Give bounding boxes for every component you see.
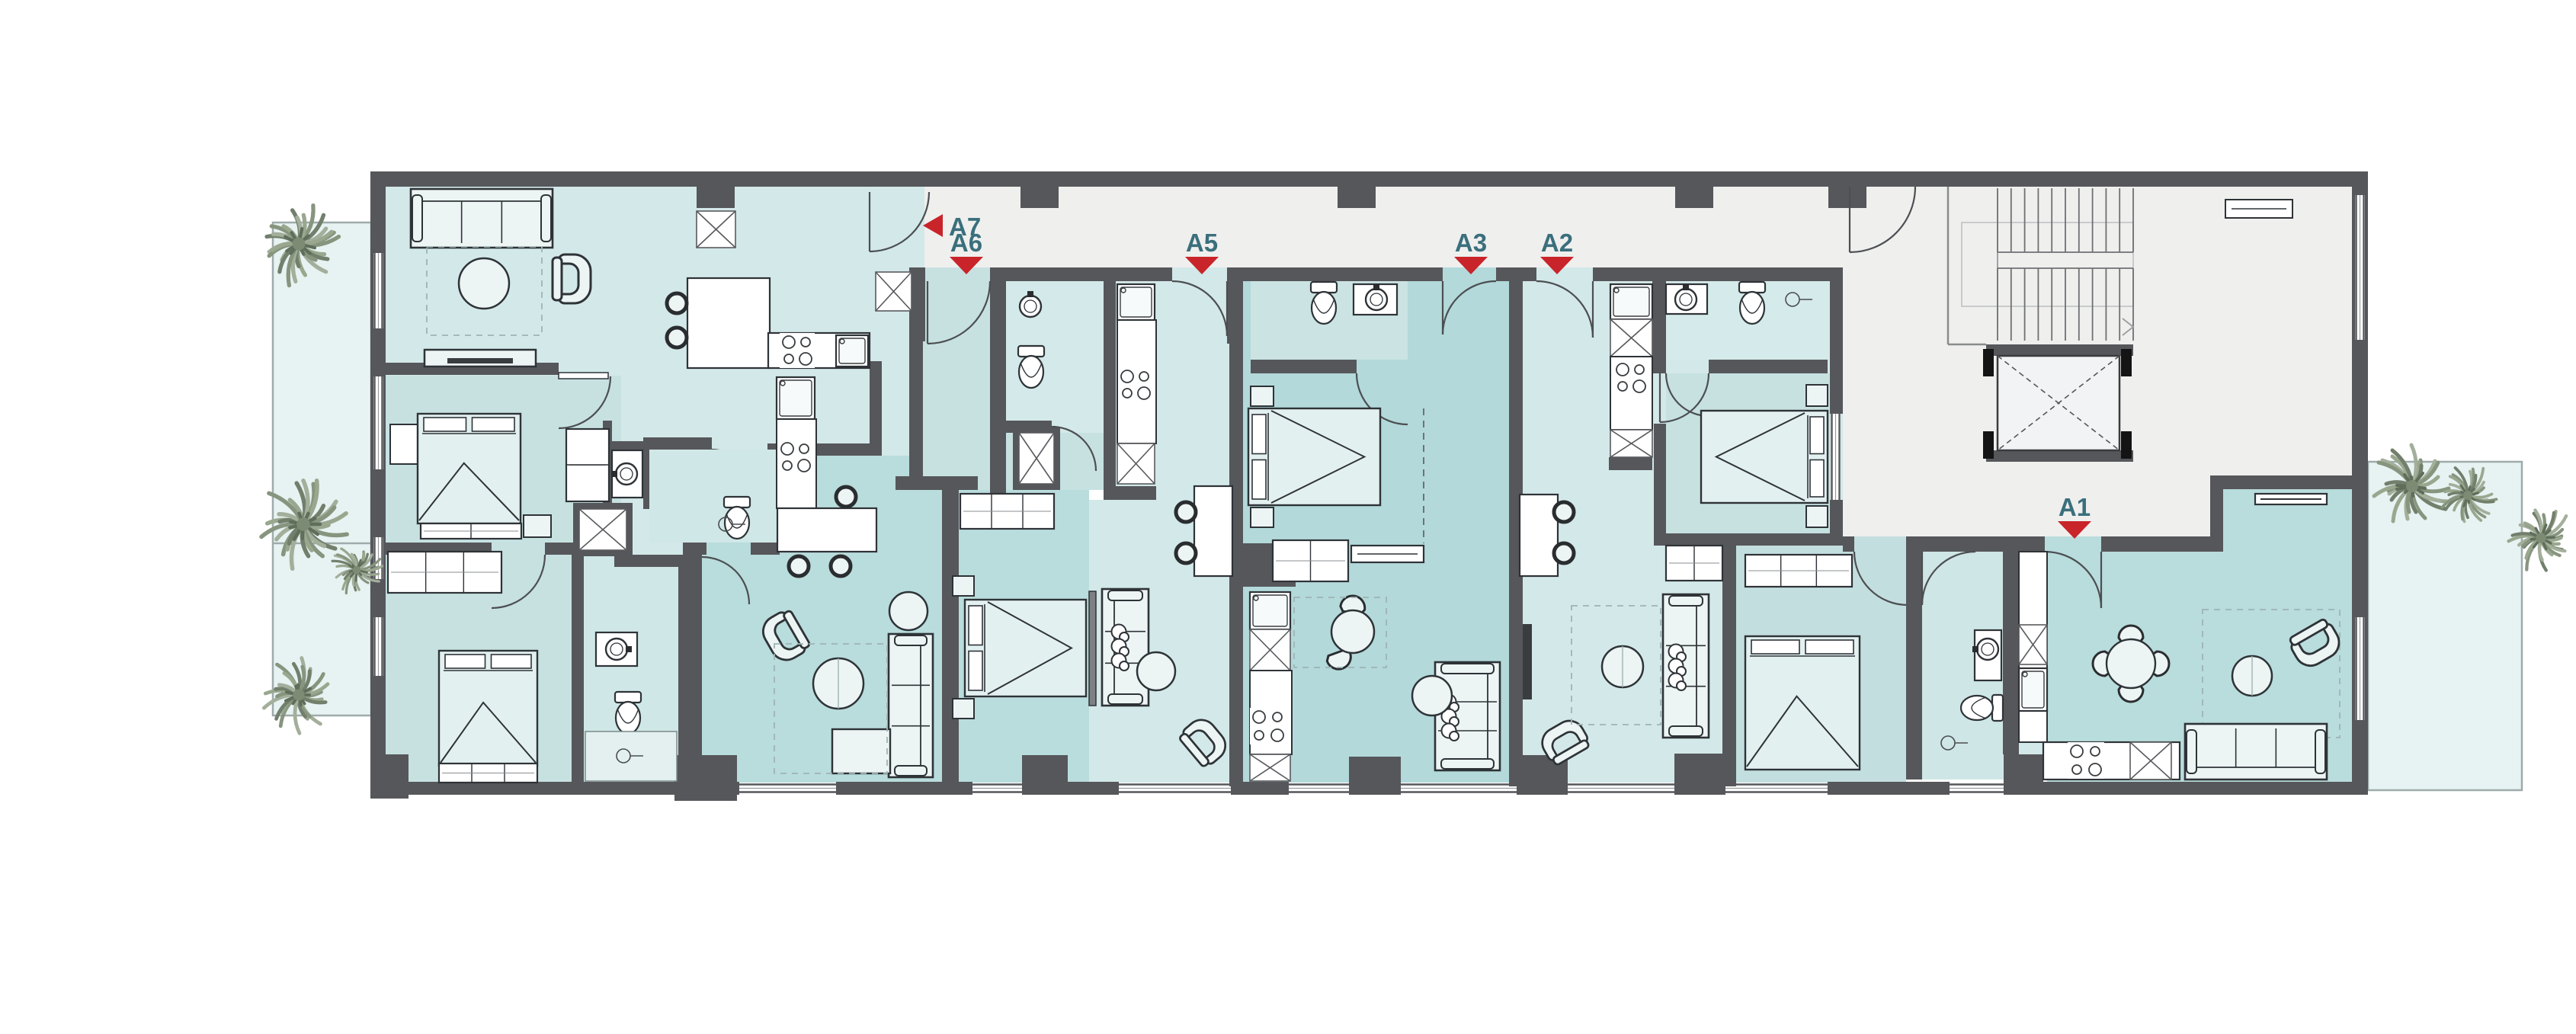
svg-text:A3: A3 [1455,229,1487,257]
svg-text:A5: A5 [1186,229,1218,257]
svg-text:A6: A6 [950,229,982,257]
svg-text:A1: A1 [2059,493,2091,521]
svg-text:A2: A2 [1541,229,1573,257]
